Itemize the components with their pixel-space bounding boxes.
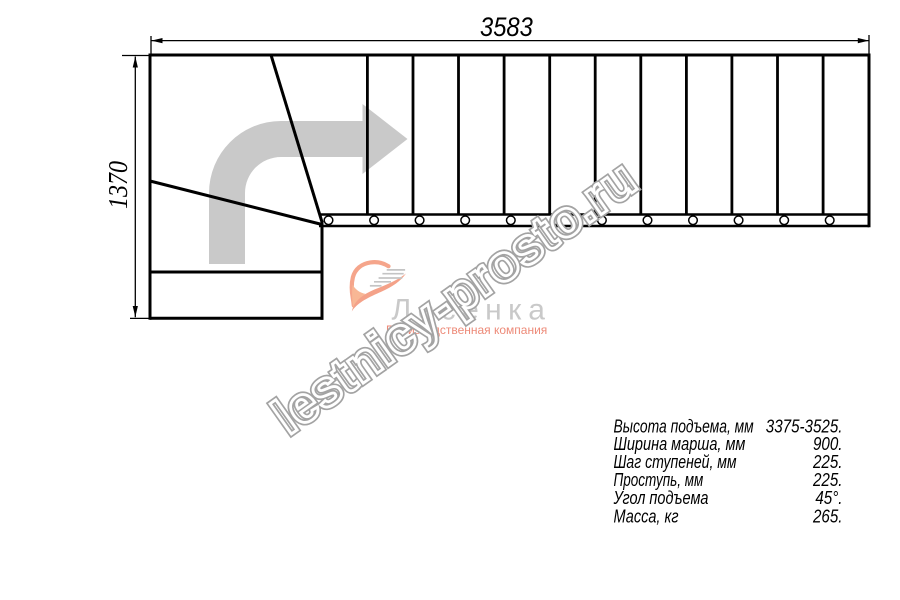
svg-text:Масса, кг: Масса, кг [614, 506, 679, 527]
svg-text:265.: 265. [812, 506, 842, 527]
svg-text:3583: 3583 [480, 13, 533, 43]
svg-text:1370: 1370 [103, 161, 134, 209]
